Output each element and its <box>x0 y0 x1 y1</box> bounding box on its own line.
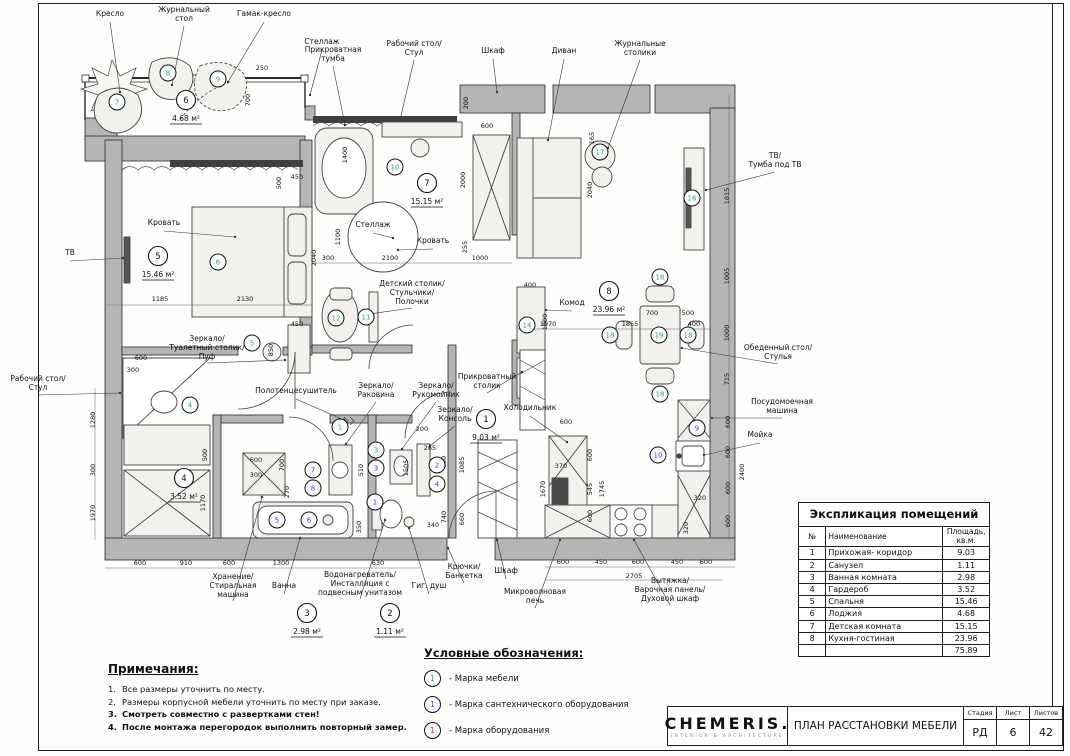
col-header-no: № <box>799 527 826 547</box>
title-block: CHEMERIS. INTERIOR & ARCHITECTURE ПЛАН Р… <box>667 706 1063 746</box>
furniture-label: Зеркало/Туалетный столик/Пуф <box>168 334 245 361</box>
room-mark-number: 7 <box>424 179 429 189</box>
leader-dot <box>401 448 403 450</box>
dining-chair <box>646 286 674 302</box>
legend-title: Условные обозначения: <box>424 646 684 660</box>
leader-dot <box>234 236 236 238</box>
leader-line <box>546 310 572 311</box>
dimension-label: 1670 <box>539 481 547 498</box>
room-area: 4.68 <box>943 608 990 620</box>
leader-dot <box>171 84 173 86</box>
leader-dot <box>122 257 124 259</box>
legend-item-label: - Марка сантехнического оборудования <box>449 700 629 710</box>
dimension-label: 630 <box>372 559 384 567</box>
furniture-label: Хранение/Стиральнаямашина <box>209 572 256 599</box>
dimension-label: 600 <box>586 510 594 522</box>
company-logo: CHEMERIS. INTERIOR & ARCHITECTURE <box>668 707 788 745</box>
sheets-value: 42 <box>1030 720 1062 745</box>
room-area: 15.46 <box>943 596 990 608</box>
room-area: 9.03 <box>943 547 990 559</box>
drawing-sheet: КреслоЖурнальныйстолГамак-креслоСтеллажП… <box>0 0 1070 756</box>
room-area-label: 15.15 м² <box>411 197 444 206</box>
room-mark-number: 8 <box>606 287 611 297</box>
leader-dot <box>559 539 561 541</box>
mark-number: 4 <box>188 401 193 409</box>
dimension-label: 600 <box>700 558 712 566</box>
room-number: 3 <box>799 571 826 583</box>
dimension-label: 1085 <box>458 457 466 474</box>
furniture-label: Гамак-кресло <box>237 9 291 18</box>
tv-bedroom <box>124 237 130 283</box>
dimension-label: 910 <box>180 559 192 567</box>
furniture-label: ТВ <box>64 248 75 257</box>
pillow <box>288 262 306 304</box>
room-name: Санузел <box>826 559 943 571</box>
room-mark-number: 5 <box>155 252 160 262</box>
dimension-label: 715 <box>723 373 731 385</box>
mark-number: 18 <box>606 331 615 339</box>
dimension-label: 600 <box>724 515 732 527</box>
room-number: 8 <box>799 632 826 644</box>
leader-dot <box>703 454 705 456</box>
mark-number: 10 <box>654 451 663 459</box>
furniture-label: Шкаф <box>494 566 518 575</box>
table-row: 2Санузел1.11 <box>799 559 990 571</box>
legend-item: 1- Марка оборудования <box>424 722 684 739</box>
explication-title: Экспликация помещений <box>799 503 990 527</box>
dimension-label: 545 <box>586 483 594 495</box>
furniture-label: Кресло <box>96 9 125 18</box>
dimension-label: 340 <box>427 521 439 529</box>
dimension-label: 600 <box>250 456 262 464</box>
dimension-label: 165 <box>588 132 596 144</box>
dimension-label: 370 <box>555 462 567 470</box>
note-item: 2.Размеры корпусной мебели уточнить по м… <box>108 697 408 707</box>
mark-number: 5 <box>275 516 279 524</box>
leader-dot <box>344 124 346 126</box>
mark-number: 17 <box>596 148 605 156</box>
leader-dot <box>496 91 498 93</box>
room-name: Гардероб <box>826 584 943 596</box>
dining-chair <box>646 368 674 384</box>
wardrobe-sink <box>151 391 177 413</box>
dimension-label: 1000 <box>723 325 731 342</box>
room-area: 1.11 <box>943 559 990 571</box>
leader-dot <box>284 359 286 361</box>
room-name: Лоджия <box>826 608 943 620</box>
dimension-label: 400 <box>524 281 536 289</box>
bath-faucet <box>323 515 333 525</box>
journal-table <box>592 167 612 187</box>
leader-dot <box>705 189 707 191</box>
dimension-label: 1000 <box>472 254 489 262</box>
mark-number: 7 <box>311 466 315 474</box>
dimension-label: 300 <box>127 366 139 374</box>
company-subtitle: INTERIOR & ARCHITECTURE <box>671 734 784 739</box>
col-header-name: Наименование <box>826 527 943 547</box>
leader-dot <box>345 443 347 445</box>
leader-dot <box>399 119 401 121</box>
dimension-label: 2040 <box>310 250 318 267</box>
table-row: 8Кухня-гостиная23.96 <box>799 632 990 644</box>
dimension-label: 2400 <box>738 464 746 481</box>
dimension-label: 700 <box>244 94 252 106</box>
mark-number: 12 <box>332 314 341 322</box>
dimension-label: 1300 <box>273 559 290 567</box>
room-number: 1 <box>799 547 826 559</box>
stage-value: РД <box>964 720 997 745</box>
dimension-label: 600 <box>724 446 732 458</box>
furniture-label: Крючки/Банкетка <box>445 562 482 580</box>
dimension-label: 450 <box>595 558 607 566</box>
note-item: 3.Смотреть совместно с развертками стен! <box>108 709 408 719</box>
mark-number: 5 <box>250 339 254 347</box>
col-header-area: Площадь, кв.м. <box>943 527 990 547</box>
dimension-label: 1400 <box>341 147 349 164</box>
mark-circle-icon: 1 <box>424 696 441 713</box>
furniture-label: Холодильник <box>504 403 557 412</box>
kids-chair <box>330 348 352 360</box>
dimension-label: 255 <box>461 241 469 253</box>
mark-number: 10 <box>391 163 400 171</box>
dimension-label: 600 <box>481 122 493 130</box>
room-mark-number: 1 <box>483 415 488 425</box>
furniture-label: Детский столик/Стульчики/Полочки <box>379 279 445 306</box>
room-area-label: 1.11 м² <box>376 627 404 636</box>
dimension-label: 1000 <box>541 314 549 331</box>
leader-dot <box>119 392 121 394</box>
dimension-label: 740 <box>440 511 448 523</box>
sheets-label: Листов <box>1030 707 1062 719</box>
legend-item-label: - Марка оборудования <box>449 726 549 736</box>
dimension-label: 1100 <box>334 229 342 246</box>
room-name: Детская комната <box>826 620 943 632</box>
dimension-label: 265 <box>424 444 436 452</box>
room-area: 23.96 <box>943 632 990 644</box>
sheet-label: Лист <box>997 707 1030 719</box>
table-row: 5Спальня15.46 <box>799 596 990 608</box>
room-number: 6 <box>799 608 826 620</box>
room-number: 2 <box>799 559 826 571</box>
legend: Условные обозначения: 1- Марка мебели1- … <box>424 646 684 748</box>
room-area-label: 4.68 м² <box>172 114 200 123</box>
table-row: 4Гардероб3.52 <box>799 584 990 596</box>
legend-item: 1- Марка мебели <box>424 670 684 687</box>
mark-number: 18 <box>656 273 665 281</box>
dimension-label: 1005 <box>723 268 731 285</box>
mark-number: 3 <box>374 446 378 454</box>
leader-dot <box>496 539 498 541</box>
furniture-label: Посудомоечнаямашина <box>751 397 813 415</box>
table-total-row: 75.89 <box>799 644 990 656</box>
furniture-label: Прикроватнаятумба <box>305 45 362 63</box>
pillow <box>288 214 306 256</box>
furniture-label: Зеркало/Рукомойник <box>412 381 460 399</box>
mark-number: 8 <box>311 484 315 492</box>
dimension-label: 500 <box>201 449 209 461</box>
leader-dot <box>711 417 713 419</box>
wavy-line-bedroom <box>122 167 298 171</box>
mark-number: 2 <box>435 461 439 469</box>
room-mark-number: 3 <box>304 609 309 619</box>
dimension-label: 660 <box>458 513 466 525</box>
room-name: Кухня-гостиная <box>826 632 943 644</box>
kids-chair <box>330 288 352 300</box>
sheet-value: 6 <box>997 720 1030 745</box>
dimension-label: 2130 <box>237 295 254 303</box>
furniture-label: Кровать <box>148 218 180 227</box>
leader-dot <box>633 539 635 541</box>
room-name: Спальня <box>826 596 943 608</box>
dimension-label: 700 <box>278 459 286 471</box>
furniture-label: Гиг. душ <box>412 581 447 590</box>
furniture-label: Обеденный стол/Стулья <box>744 343 813 361</box>
mark-circle-icon: 1 <box>424 670 441 687</box>
room-name: Ванная комната <box>826 571 943 583</box>
dimension-label: 600 <box>223 559 235 567</box>
room-number: 4 <box>799 584 826 596</box>
notes: Примечания: 1.Все размеры уточнить по ме… <box>108 662 408 734</box>
leader-dot <box>119 91 121 93</box>
leader-dot <box>384 519 386 521</box>
mark-number: 18 <box>684 331 693 339</box>
oven <box>552 478 568 504</box>
dimension-label: 1505 <box>402 460 410 477</box>
mark-number: 7 <box>115 98 119 106</box>
mark-number: 1 <box>338 423 342 431</box>
dimension-label: 500 <box>275 177 283 189</box>
toilet-bowl <box>380 500 402 528</box>
furniture-label: Рабочий стол/Стул <box>386 39 442 57</box>
dimension-label: 1170 <box>199 495 207 512</box>
dimension-label: 600 <box>724 416 732 428</box>
dimension-label: 200 <box>462 97 470 109</box>
total-area: 75.89 <box>943 644 990 656</box>
vanity-table <box>288 325 310 373</box>
leader-dot <box>547 139 549 141</box>
dimension-label: 2040 <box>586 182 594 199</box>
mark-number: 9 <box>216 75 220 83</box>
furniture-label: Зеркало/Консоль <box>437 405 473 423</box>
furniture-label: Шкаф <box>481 46 505 55</box>
leader-line <box>296 399 344 420</box>
dimension-label: 1855 <box>622 320 639 328</box>
notes-title: Примечания: <box>108 662 408 676</box>
dimension-label: 2705 <box>626 572 643 580</box>
room-area: 2.98 <box>943 571 990 583</box>
dimension-label: 270 <box>283 486 291 498</box>
dimension-label: 200 <box>416 425 428 433</box>
stage-label: Стадия <box>964 707 997 719</box>
leader-dot <box>392 237 394 239</box>
mark-number: 18 <box>656 390 665 398</box>
leader-line <box>228 22 264 82</box>
company-name: CHEMERIS. <box>665 714 791 733</box>
dimension-label: 600 <box>560 418 572 426</box>
furniture-label: Стеллаж <box>355 220 390 229</box>
mark-number: 8 <box>166 69 170 77</box>
dimension-label: 2000 <box>459 172 467 189</box>
note-item: 4.После монтажа перегородок выполнить по… <box>108 722 408 732</box>
furniture-label: Кровать <box>417 236 449 245</box>
leader-dot <box>447 547 449 549</box>
kids-desk-chair <box>411 139 429 157</box>
furniture-label: Ванна <box>272 581 296 590</box>
room-mark-number: 6 <box>183 96 188 106</box>
drawing-title: ПЛАН РАССТАНОВКИ МЕБЕЛИ <box>788 707 964 745</box>
dimension-label: 510 <box>357 464 365 476</box>
note-item: 1.Все размеры уточнить по месту. <box>108 684 408 694</box>
leader-line <box>207 360 285 363</box>
dimension-label: 450 <box>671 558 683 566</box>
dimension-label: 600 <box>134 559 146 567</box>
leader-dot <box>545 309 547 311</box>
table-row: 3Ванная комната2.98 <box>799 571 990 583</box>
mark-number: 19 <box>655 331 664 339</box>
leader-dot <box>309 94 311 96</box>
dimension-label: 600 <box>586 449 594 461</box>
dimension-label: 500 <box>682 309 694 317</box>
furniture-label: Диван <box>552 46 577 55</box>
leader-dot <box>408 527 410 529</box>
room-area: 15.15 <box>943 620 990 632</box>
leader-dot <box>521 371 523 373</box>
dimension-label: 600 <box>557 558 569 566</box>
mark-number: 1 <box>373 498 377 506</box>
dimension-label: 250 <box>256 64 268 72</box>
dimension-label: 600 <box>724 482 732 494</box>
room-name: Прихожая- коридор <box>826 547 943 559</box>
mark-number: 14 <box>523 321 532 329</box>
dimension-label: 320 <box>682 522 690 534</box>
legend-item: 1- Марка сантехнического оборудования <box>424 696 684 713</box>
furniture-label: Зеркало/Раковина <box>357 381 394 399</box>
leader-dot <box>566 441 568 443</box>
mark-number: 6 <box>216 258 221 266</box>
leader-dot <box>299 537 301 539</box>
dimension-label: 300 <box>250 471 262 479</box>
leader-dot <box>681 347 683 349</box>
kids-desk <box>382 122 462 137</box>
furniture-label: Журнальныестолики <box>614 39 666 57</box>
dimension-label: 350 <box>355 521 363 533</box>
dimension-label: 300 <box>89 464 97 476</box>
stage-grid: Стадия Лист Листов РД 6 42 <box>964 707 1062 745</box>
mark-number: 16 <box>688 194 697 202</box>
dimension-label: 600 <box>632 558 644 566</box>
dimension-label: 1970 <box>89 505 97 522</box>
leader-dot <box>397 249 399 251</box>
dimension-label: 1745 <box>598 481 606 498</box>
mark-number: 11 <box>362 313 371 321</box>
furniture-label: Водонагреватель/Инсталляция сподвесным у… <box>318 570 402 597</box>
dimension-label: 450 <box>291 320 303 328</box>
furniture-label: Микроволноваяпечь <box>504 587 566 605</box>
room-area-label: 23.96 м² <box>593 305 626 314</box>
dimension-label: 850 <box>267 344 275 356</box>
dimension-label: 600 <box>135 354 147 362</box>
hyg-shower <box>404 517 414 527</box>
room-area-label: 3.52 м² <box>170 492 198 501</box>
dimension-label: 1185 <box>152 295 169 303</box>
furniture-label: Журнальныйстол <box>158 5 210 23</box>
table-row: 7Детская комната15.15 <box>799 620 990 632</box>
dimension-label: 300 <box>322 254 334 262</box>
leader-dot <box>261 496 263 498</box>
mark-number: 3 <box>374 464 378 472</box>
furniture-label: Комод <box>559 298 584 307</box>
room-number: 7 <box>799 620 826 632</box>
dimension-label: 2100 <box>382 254 399 262</box>
dimension-label: 320 <box>694 494 706 502</box>
dimension-label: 450 <box>291 173 303 181</box>
room-area-label: 9.03 м² <box>472 433 500 442</box>
room-area: 3.52 <box>943 584 990 596</box>
table-row: 1Прихожая- коридор9.03 <box>799 547 990 559</box>
furniture-label: Рабочий стол/Стул <box>10 374 66 392</box>
leader-dot <box>227 81 229 83</box>
explication-table: Экспликация помещений № Наименование Пло… <box>798 502 990 657</box>
room-area-label: 2.98 м² <box>293 627 321 636</box>
mark-number: 4 <box>435 480 440 488</box>
room-number: 5 <box>799 596 826 608</box>
legend-item-label: - Марка мебели <box>449 674 519 684</box>
room-mark-number: 2 <box>387 609 392 619</box>
furniture-label: Мойка <box>747 430 772 439</box>
mark-number: 6 <box>307 516 312 524</box>
furniture-label: ТВ/Тумба под ТВ <box>747 151 801 169</box>
leader-line <box>400 60 414 120</box>
mark-circle-icon: 1 <box>424 722 441 739</box>
table-row: 6Лоджия4.68 <box>799 608 990 620</box>
storage-shelves <box>124 425 210 465</box>
mark-number: 9 <box>695 424 699 432</box>
room-area-label: 15.46 м² <box>142 270 175 279</box>
room-mark-number: 4 <box>181 474 186 484</box>
dimension-label: 700 <box>646 309 658 317</box>
furniture-label: Полотенцесушитель <box>255 386 337 395</box>
dimension-label: 1815 <box>723 188 731 205</box>
dimension-label: 1280 <box>89 412 97 429</box>
